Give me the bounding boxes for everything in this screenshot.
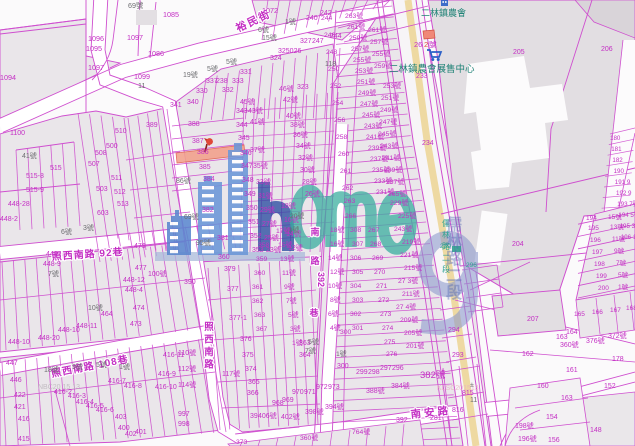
svg-text:301: 301 bbox=[352, 325, 364, 332]
svg-text:367: 367 bbox=[256, 326, 268, 333]
svg-text:379: 379 bbox=[224, 266, 236, 273]
svg-text:196 1號: 196 1號 bbox=[621, 233, 635, 241]
svg-text:363: 363 bbox=[254, 312, 266, 319]
svg-text:168: 168 bbox=[626, 305, 635, 312]
svg-text:46號: 46號 bbox=[279, 84, 294, 93]
svg-text:294: 294 bbox=[448, 327, 460, 334]
svg-text:358: 358 bbox=[258, 242, 270, 249]
svg-text:27 4號: 27 4號 bbox=[396, 302, 416, 311]
svg-text:507: 507 bbox=[88, 161, 100, 168]
svg-text:1096: 1096 bbox=[88, 34, 104, 43]
svg-text:406號: 406號 bbox=[258, 411, 277, 420]
svg-text:200: 200 bbox=[598, 285, 609, 292]
svg-text:253號: 253號 bbox=[383, 81, 401, 90]
svg-text:12號: 12號 bbox=[330, 267, 345, 276]
svg-text:325026: 325026 bbox=[278, 48, 301, 55]
svg-text:258: 258 bbox=[336, 134, 348, 141]
svg-text:360號: 360號 bbox=[300, 433, 318, 442]
svg-text:10號: 10號 bbox=[88, 303, 103, 312]
svg-text:193 7號: 193 7號 bbox=[617, 200, 635, 208]
svg-text:7號: 7號 bbox=[305, 346, 316, 355]
svg-text:365: 365 bbox=[248, 379, 260, 386]
svg-text:416: 416 bbox=[18, 416, 30, 423]
svg-text:257號: 257號 bbox=[351, 44, 369, 53]
svg-text:308: 308 bbox=[350, 227, 362, 234]
svg-text:261號: 261號 bbox=[368, 25, 386, 34]
svg-text:510: 510 bbox=[115, 128, 127, 135]
svg-text:296: 296 bbox=[466, 262, 477, 269]
svg-text:195: 195 bbox=[588, 225, 599, 232]
svg-text:503: 503 bbox=[96, 186, 108, 193]
svg-text:303: 303 bbox=[352, 297, 364, 304]
svg-text:274: 274 bbox=[382, 325, 394, 332]
svg-text:348: 348 bbox=[242, 177, 254, 184]
svg-text:1號: 1號 bbox=[292, 338, 303, 347]
svg-text:968: 968 bbox=[272, 400, 284, 407]
svg-text:2: 2 bbox=[424, 40, 428, 49]
svg-text:8號: 8號 bbox=[330, 295, 341, 304]
svg-text:402號: 402號 bbox=[281, 412, 300, 421]
svg-text:163: 163 bbox=[561, 395, 573, 402]
svg-text:268: 268 bbox=[370, 241, 382, 248]
svg-text:253號: 253號 bbox=[355, 66, 373, 75]
svg-text:16號: 16號 bbox=[330, 239, 345, 248]
svg-text:603: 603 bbox=[97, 210, 109, 217]
svg-text:27 3號: 27 3號 bbox=[398, 276, 418, 285]
svg-text:448-9: 448-9 bbox=[43, 261, 61, 268]
svg-text:18號: 18號 bbox=[281, 201, 296, 210]
svg-text:297: 297 bbox=[380, 365, 392, 372]
svg-text:29號: 29號 bbox=[260, 205, 275, 214]
svg-text:1號: 1號 bbox=[336, 349, 347, 358]
svg-text:255號: 255號 bbox=[353, 55, 371, 64]
svg-text:366: 366 bbox=[247, 390, 259, 397]
svg-text:13號: 13號 bbox=[280, 254, 295, 263]
svg-text:230: 230 bbox=[440, 243, 451, 250]
svg-text:40號: 40號 bbox=[286, 111, 301, 120]
svg-text:392: 392 bbox=[316, 272, 326, 287]
svg-text:345: 345 bbox=[238, 135, 250, 142]
svg-text:二林鎮農會: 二林鎮農會 bbox=[421, 7, 466, 18]
svg-text:257號: 257號 bbox=[370, 37, 388, 46]
svg-text:180: 180 bbox=[610, 135, 621, 142]
svg-text:304: 304 bbox=[350, 283, 362, 290]
svg-text:1095: 1095 bbox=[86, 44, 102, 53]
svg-text:352: 352 bbox=[250, 233, 262, 240]
svg-text:448-2: 448-2 bbox=[0, 216, 18, 223]
svg-text:327: 327 bbox=[300, 38, 312, 45]
svg-text:267: 267 bbox=[368, 227, 380, 234]
svg-text:33號: 33號 bbox=[256, 177, 271, 186]
svg-text:205號: 205號 bbox=[404, 328, 422, 337]
svg-text:7號: 7號 bbox=[48, 269, 59, 278]
svg-text:249號: 249號 bbox=[358, 88, 376, 97]
svg-text:515: 515 bbox=[50, 165, 62, 172]
svg-text:5號: 5號 bbox=[96, 360, 107, 369]
svg-text:239號: 239號 bbox=[384, 165, 402, 174]
svg-text:234: 234 bbox=[422, 140, 434, 147]
svg-text:1085: 1085 bbox=[163, 10, 179, 19]
svg-text:238: 238 bbox=[216, 78, 228, 85]
svg-text:970: 970 bbox=[292, 389, 304, 396]
svg-text:362: 362 bbox=[252, 298, 264, 305]
svg-text:341: 341 bbox=[170, 102, 182, 109]
svg-text:997: 997 bbox=[178, 411, 190, 418]
svg-text:號: 號 bbox=[429, 39, 437, 49]
svg-text:377: 377 bbox=[227, 286, 239, 293]
svg-text:243號: 243號 bbox=[394, 224, 412, 233]
svg-text:117號: 117號 bbox=[222, 369, 240, 378]
svg-text:110號: 110號 bbox=[178, 348, 196, 357]
svg-text:477: 477 bbox=[135, 265, 147, 272]
svg-text:249號: 249號 bbox=[380, 105, 398, 114]
svg-text:237號: 237號 bbox=[386, 177, 404, 186]
svg-text:343: 343 bbox=[236, 108, 248, 115]
svg-text:31號: 31號 bbox=[258, 191, 273, 200]
svg-text:二林鎮農會展售中心: 二林鎮農會展售中心 bbox=[389, 63, 475, 75]
svg-text:307: 307 bbox=[352, 241, 364, 248]
svg-text:178: 178 bbox=[612, 356, 624, 363]
svg-text:508: 508 bbox=[95, 150, 107, 157]
svg-text:375: 375 bbox=[242, 352, 254, 359]
svg-text:256: 256 bbox=[334, 117, 346, 124]
svg-text:250: 250 bbox=[328, 66, 340, 73]
svg-text:376號: 376號 bbox=[586, 336, 605, 345]
svg-text:196: 196 bbox=[590, 237, 601, 244]
svg-text:35號: 35號 bbox=[253, 161, 268, 170]
svg-text:376: 376 bbox=[240, 336, 252, 343]
svg-text:NBC20 15 13: NBC20 15 13 bbox=[38, 384, 80, 391]
svg-text:265號: 265號 bbox=[388, 189, 406, 198]
svg-text:207: 207 bbox=[527, 316, 539, 323]
svg-text:344: 344 bbox=[236, 122, 248, 129]
svg-text:166: 166 bbox=[592, 309, 603, 316]
svg-text:3號: 3號 bbox=[83, 223, 94, 232]
svg-text:15號: 15號 bbox=[278, 240, 293, 249]
svg-text:197: 197 bbox=[592, 249, 603, 256]
svg-text:382: 382 bbox=[202, 207, 214, 214]
svg-text:10號: 10號 bbox=[328, 281, 343, 290]
svg-text:194 5號: 194 5號 bbox=[618, 211, 635, 219]
svg-text:39: 39 bbox=[250, 413, 258, 420]
svg-text:448: 448 bbox=[46, 251, 58, 258]
svg-text:416-8: 416-8 bbox=[124, 383, 142, 390]
svg-text:照: 照 bbox=[204, 322, 214, 333]
svg-text:42號: 42號 bbox=[283, 95, 298, 104]
svg-text:100號: 100號 bbox=[148, 269, 167, 278]
svg-text:298: 298 bbox=[368, 369, 380, 376]
svg-text:340: 340 bbox=[187, 99, 199, 106]
svg-text:38號: 38號 bbox=[290, 120, 305, 129]
svg-text:15號: 15號 bbox=[262, 33, 277, 42]
svg-text:27號: 27號 bbox=[262, 219, 277, 228]
svg-text:972: 972 bbox=[316, 384, 328, 391]
svg-text:374: 374 bbox=[245, 366, 257, 373]
svg-text:384: 384 bbox=[203, 176, 215, 183]
svg-text:816: 816 bbox=[452, 407, 464, 414]
svg-text:240: 240 bbox=[306, 15, 318, 22]
svg-text:156: 156 bbox=[548, 437, 560, 444]
svg-text:377-1: 377-1 bbox=[229, 315, 247, 322]
svg-text:南: 南 bbox=[204, 346, 214, 358]
svg-text:416-9: 416-9 bbox=[158, 371, 176, 378]
svg-text:路: 路 bbox=[446, 249, 463, 268]
svg-text:18號: 18號 bbox=[44, 365, 59, 374]
svg-text:1086: 1086 bbox=[148, 49, 164, 58]
svg-text:154: 154 bbox=[546, 414, 558, 421]
svg-text:306: 306 bbox=[350, 255, 362, 262]
svg-text:219號: 219號 bbox=[402, 237, 420, 246]
svg-text:388: 388 bbox=[188, 121, 200, 128]
svg-text:388號: 388號 bbox=[366, 386, 385, 395]
svg-text:9號: 9號 bbox=[614, 246, 625, 255]
svg-text:971: 971 bbox=[304, 389, 316, 396]
svg-text:198: 198 bbox=[594, 261, 605, 268]
svg-text:299: 299 bbox=[356, 369, 368, 376]
svg-text:261: 261 bbox=[340, 168, 352, 175]
svg-text:5號: 5號 bbox=[288, 310, 299, 319]
svg-text:221號: 221號 bbox=[400, 250, 418, 259]
svg-text:247號: 247號 bbox=[360, 99, 378, 108]
svg-text:181: 181 bbox=[611, 146, 622, 153]
svg-text:296: 296 bbox=[392, 365, 404, 372]
svg-text:247: 247 bbox=[312, 38, 324, 45]
svg-text:387: 387 bbox=[192, 138, 204, 145]
svg-text:3號: 3號 bbox=[290, 324, 301, 333]
svg-text:19號: 19號 bbox=[183, 70, 198, 79]
svg-text:247號: 247號 bbox=[379, 117, 397, 126]
svg-text:270: 270 bbox=[374, 269, 386, 276]
svg-text:511: 511 bbox=[111, 175, 122, 182]
svg-text:403: 403 bbox=[115, 414, 127, 421]
svg-text:422: 422 bbox=[14, 392, 26, 399]
svg-text:225號: 225號 bbox=[398, 211, 416, 220]
svg-text:251號: 251號 bbox=[381, 93, 399, 102]
svg-text:251號: 251號 bbox=[357, 77, 375, 86]
svg-text:969: 969 bbox=[282, 397, 294, 404]
svg-text:385: 385 bbox=[199, 164, 211, 171]
svg-text:515-9: 515-9 bbox=[26, 187, 44, 194]
svg-text:233: 233 bbox=[416, 73, 428, 80]
svg-text:114號: 114號 bbox=[178, 380, 196, 389]
svg-text:194: 194 bbox=[586, 215, 597, 222]
svg-text:167: 167 bbox=[610, 307, 621, 314]
svg-text:206: 206 bbox=[601, 46, 613, 53]
svg-text:160: 160 bbox=[537, 383, 549, 390]
svg-text:262: 262 bbox=[342, 185, 354, 192]
svg-text:209號: 209號 bbox=[400, 315, 418, 324]
svg-text:361: 361 bbox=[252, 284, 264, 291]
svg-text:30號: 30號 bbox=[300, 165, 315, 174]
svg-text:段: 段 bbox=[446, 283, 463, 302]
svg-text:448-12: 448-12 bbox=[123, 277, 145, 284]
svg-text:332: 332 bbox=[222, 87, 234, 94]
svg-text:998: 998 bbox=[178, 421, 190, 428]
svg-text:275: 275 bbox=[384, 339, 396, 346]
svg-text:266: 266 bbox=[345, 213, 357, 220]
svg-text:南: 南 bbox=[310, 226, 319, 237]
svg-text:245號: 245號 bbox=[378, 129, 396, 138]
svg-text:45號: 45號 bbox=[240, 97, 255, 106]
svg-text:351: 351 bbox=[248, 219, 260, 226]
svg-text:263: 263 bbox=[344, 198, 356, 205]
svg-text:349: 349 bbox=[244, 191, 256, 198]
svg-text:515-8: 515-8 bbox=[26, 173, 44, 180]
svg-text:1號: 1號 bbox=[119, 362, 130, 371]
svg-text:330: 330 bbox=[196, 88, 208, 95]
svg-text:20號: 20號 bbox=[290, 211, 305, 220]
svg-text:276: 276 bbox=[386, 351, 398, 358]
svg-text:244: 244 bbox=[321, 15, 333, 22]
svg-text:421: 421 bbox=[14, 404, 26, 411]
svg-text:199: 199 bbox=[596, 273, 607, 280]
svg-text:34號: 34號 bbox=[296, 141, 311, 150]
svg-text:162: 162 bbox=[522, 351, 534, 358]
svg-text:401: 401 bbox=[135, 429, 147, 436]
svg-text:9號: 9號 bbox=[284, 282, 295, 291]
svg-text:28號: 28號 bbox=[302, 177, 317, 186]
svg-text:398號: 398號 bbox=[305, 407, 324, 416]
svg-text:324: 324 bbox=[270, 55, 282, 62]
svg-text:390: 390 bbox=[184, 279, 196, 286]
svg-text:165: 165 bbox=[574, 311, 585, 318]
svg-text:37號: 37號 bbox=[250, 145, 265, 154]
svg-text:6號: 6號 bbox=[258, 25, 269, 34]
svg-text:479: 479 bbox=[134, 243, 146, 250]
svg-text:17號: 17號 bbox=[276, 226, 291, 235]
svg-text:300: 300 bbox=[340, 329, 352, 336]
svg-text:36號: 36號 bbox=[293, 130, 308, 139]
svg-text:512: 512 bbox=[114, 189, 126, 196]
svg-text:1097: 1097 bbox=[88, 63, 104, 72]
svg-text:263號: 263號 bbox=[345, 11, 363, 20]
svg-text:195 3號: 195 3號 bbox=[620, 222, 635, 230]
svg-text:西: 西 bbox=[204, 335, 214, 346]
svg-text:1100: 1100 bbox=[10, 130, 25, 137]
svg-text:205: 205 bbox=[513, 49, 525, 56]
svg-text:272: 272 bbox=[378, 297, 390, 304]
svg-text:191 9: 191 9 bbox=[615, 179, 631, 186]
svg-text:11: 11 bbox=[470, 397, 477, 404]
svg-text:路: 路 bbox=[204, 359, 214, 371]
svg-text:163: 163 bbox=[556, 334, 568, 341]
svg-text:302: 302 bbox=[350, 311, 362, 318]
svg-text:474: 474 bbox=[133, 305, 145, 312]
svg-text:211號: 211號 bbox=[402, 289, 420, 298]
svg-text:201號: 201號 bbox=[406, 341, 424, 350]
svg-text:190: 190 bbox=[614, 168, 625, 175]
svg-text:245號: 245號 bbox=[362, 110, 380, 119]
svg-text:5號: 5號 bbox=[308, 337, 319, 346]
svg-text:360: 360 bbox=[254, 270, 266, 277]
svg-text:359: 359 bbox=[256, 256, 268, 263]
svg-text:1號: 1號 bbox=[618, 282, 629, 291]
svg-text:448-10: 448-10 bbox=[8, 339, 30, 346]
svg-text:26號: 26號 bbox=[305, 189, 320, 198]
svg-text:86號: 86號 bbox=[176, 176, 191, 185]
svg-text:152: 152 bbox=[604, 383, 616, 390]
svg-text:1094: 1094 bbox=[0, 73, 16, 82]
svg-text:41號: 41號 bbox=[250, 117, 265, 126]
svg-text:346: 346 bbox=[240, 150, 252, 157]
svg-text:198號: 198號 bbox=[515, 421, 534, 430]
svg-text:7號: 7號 bbox=[286, 296, 297, 305]
svg-text:382號: 382號 bbox=[420, 369, 446, 381]
svg-text:1號: 1號 bbox=[285, 17, 296, 26]
svg-text:±: ± bbox=[470, 382, 474, 389]
svg-text:500: 500 bbox=[106, 143, 118, 150]
svg-text:347: 347 bbox=[241, 163, 253, 170]
svg-text:5號: 5號 bbox=[226, 57, 237, 66]
svg-text:215號: 215號 bbox=[404, 263, 422, 272]
svg-text:392: 392 bbox=[396, 417, 408, 424]
svg-text:6號: 6號 bbox=[61, 227, 72, 236]
svg-text:192 9: 192 9 bbox=[616, 190, 632, 197]
svg-text:182: 182 bbox=[612, 157, 623, 164]
svg-text:11號: 11號 bbox=[282, 268, 296, 277]
svg-text:513: 513 bbox=[117, 201, 129, 208]
svg-text:246: 246 bbox=[324, 32, 336, 39]
svg-text:二: 二 bbox=[446, 268, 462, 285]
svg-text:14號: 14號 bbox=[328, 253, 343, 262]
svg-text:260: 260 bbox=[338, 151, 350, 158]
svg-text:26: 26 bbox=[414, 40, 422, 49]
svg-text:259號: 259號 bbox=[349, 33, 367, 42]
svg-text:69號: 69號 bbox=[184, 212, 199, 221]
svg-text:394號: 394號 bbox=[325, 402, 344, 411]
svg-text:269: 269 bbox=[372, 255, 384, 262]
svg-text:350: 350 bbox=[246, 205, 258, 212]
svg-text:6號: 6號 bbox=[328, 309, 339, 318]
svg-text:241號: 241號 bbox=[382, 153, 400, 162]
svg-text:384號: 384號 bbox=[391, 381, 410, 390]
svg-text:360號: 360號 bbox=[560, 340, 579, 349]
svg-text:389: 389 bbox=[146, 122, 158, 129]
svg-text:448-11: 448-11 bbox=[76, 323, 97, 330]
svg-text:11: 11 bbox=[138, 81, 145, 90]
svg-text:18號: 18號 bbox=[330, 225, 345, 234]
svg-text:447: 447 bbox=[6, 360, 18, 367]
svg-text:196號: 196號 bbox=[518, 434, 537, 443]
svg-text:300: 300 bbox=[337, 363, 349, 370]
svg-text:323: 323 bbox=[297, 84, 309, 91]
svg-text:9號: 9號 bbox=[72, 362, 83, 371]
svg-text:204: 204 bbox=[512, 241, 524, 248]
svg-text:360: 360 bbox=[218, 254, 230, 261]
svg-text:1072: 1072 bbox=[262, 6, 278, 15]
svg-text:293: 293 bbox=[452, 352, 464, 359]
svg-text:448-28: 448-28 bbox=[8, 201, 30, 208]
svg-text:41號: 41號 bbox=[22, 151, 37, 160]
svg-text:95號: 95號 bbox=[196, 238, 211, 247]
svg-text:路: 路 bbox=[310, 255, 320, 266]
svg-text:464: 464 bbox=[101, 311, 113, 318]
svg-text:386: 386 bbox=[197, 149, 209, 156]
svg-text:416-6: 416-6 bbox=[96, 407, 114, 414]
svg-text:7號: 7號 bbox=[616, 258, 627, 267]
svg-text:255號: 255號 bbox=[372, 49, 390, 58]
svg-text:372號: 372號 bbox=[608, 331, 627, 340]
svg-text:973: 973 bbox=[328, 384, 340, 391]
svg-text:32號: 32號 bbox=[298, 153, 313, 162]
svg-text:161: 161 bbox=[566, 367, 578, 374]
svg-text:5號: 5號 bbox=[618, 270, 629, 279]
svg-text:1097: 1097 bbox=[127, 33, 143, 42]
svg-text:243號: 243號 bbox=[380, 141, 398, 150]
svg-text:巷: 巷 bbox=[308, 307, 319, 318]
svg-text:331: 331 bbox=[240, 69, 252, 76]
svg-text:248: 248 bbox=[326, 49, 338, 56]
